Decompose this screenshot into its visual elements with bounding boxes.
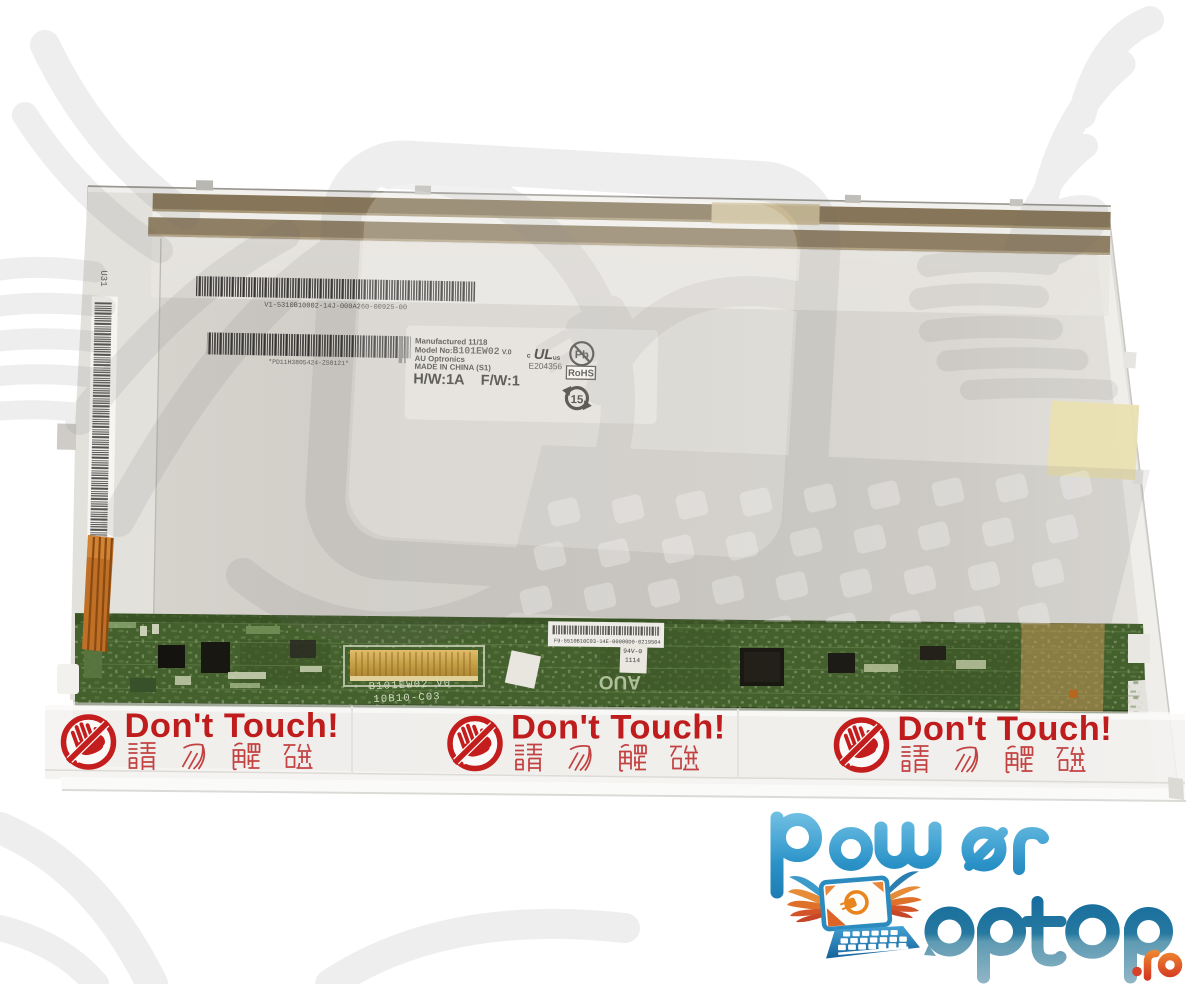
svg-text:AUO: AUO (599, 671, 641, 692)
svg-text:1114: 1114 (625, 657, 641, 665)
svg-text:94V-0: 94V-0 (623, 648, 642, 656)
